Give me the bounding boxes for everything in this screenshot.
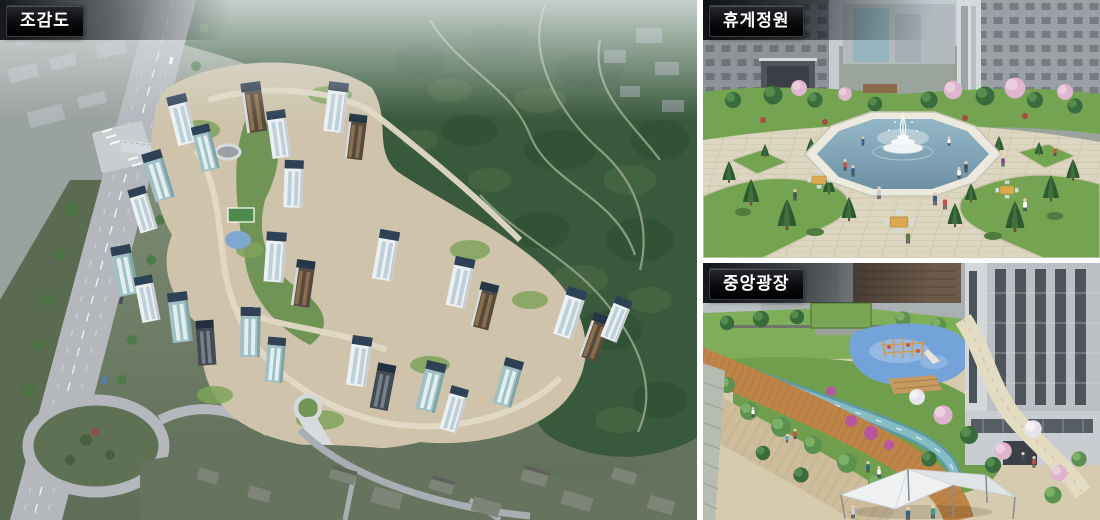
pergola [863, 84, 897, 93]
panel-aerial-view: 조감도 [0, 0, 697, 520]
atmospheric-haze [0, 0, 697, 120]
panel-label-plaza: 중앙광장 [709, 268, 804, 300]
playground-aerial [225, 231, 251, 249]
roundabout [296, 396, 320, 420]
panel-label-aerial: 조감도 [6, 5, 84, 37]
brochure-canvas: 조감도 [0, 0, 1100, 520]
panel-central-plaza: 중앙광장 [703, 263, 1100, 520]
aerial-view-rendering [0, 0, 697, 520]
sports-court [228, 208, 254, 222]
central-plaza-rendering [703, 263, 1100, 520]
panel-label-garden: 휴게정원 [709, 5, 804, 37]
panel-rest-garden: 휴게정원 [703, 0, 1100, 258]
rest-garden-rendering [703, 0, 1100, 258]
fountain-pond [805, 112, 1001, 196]
oval-court [216, 145, 240, 159]
